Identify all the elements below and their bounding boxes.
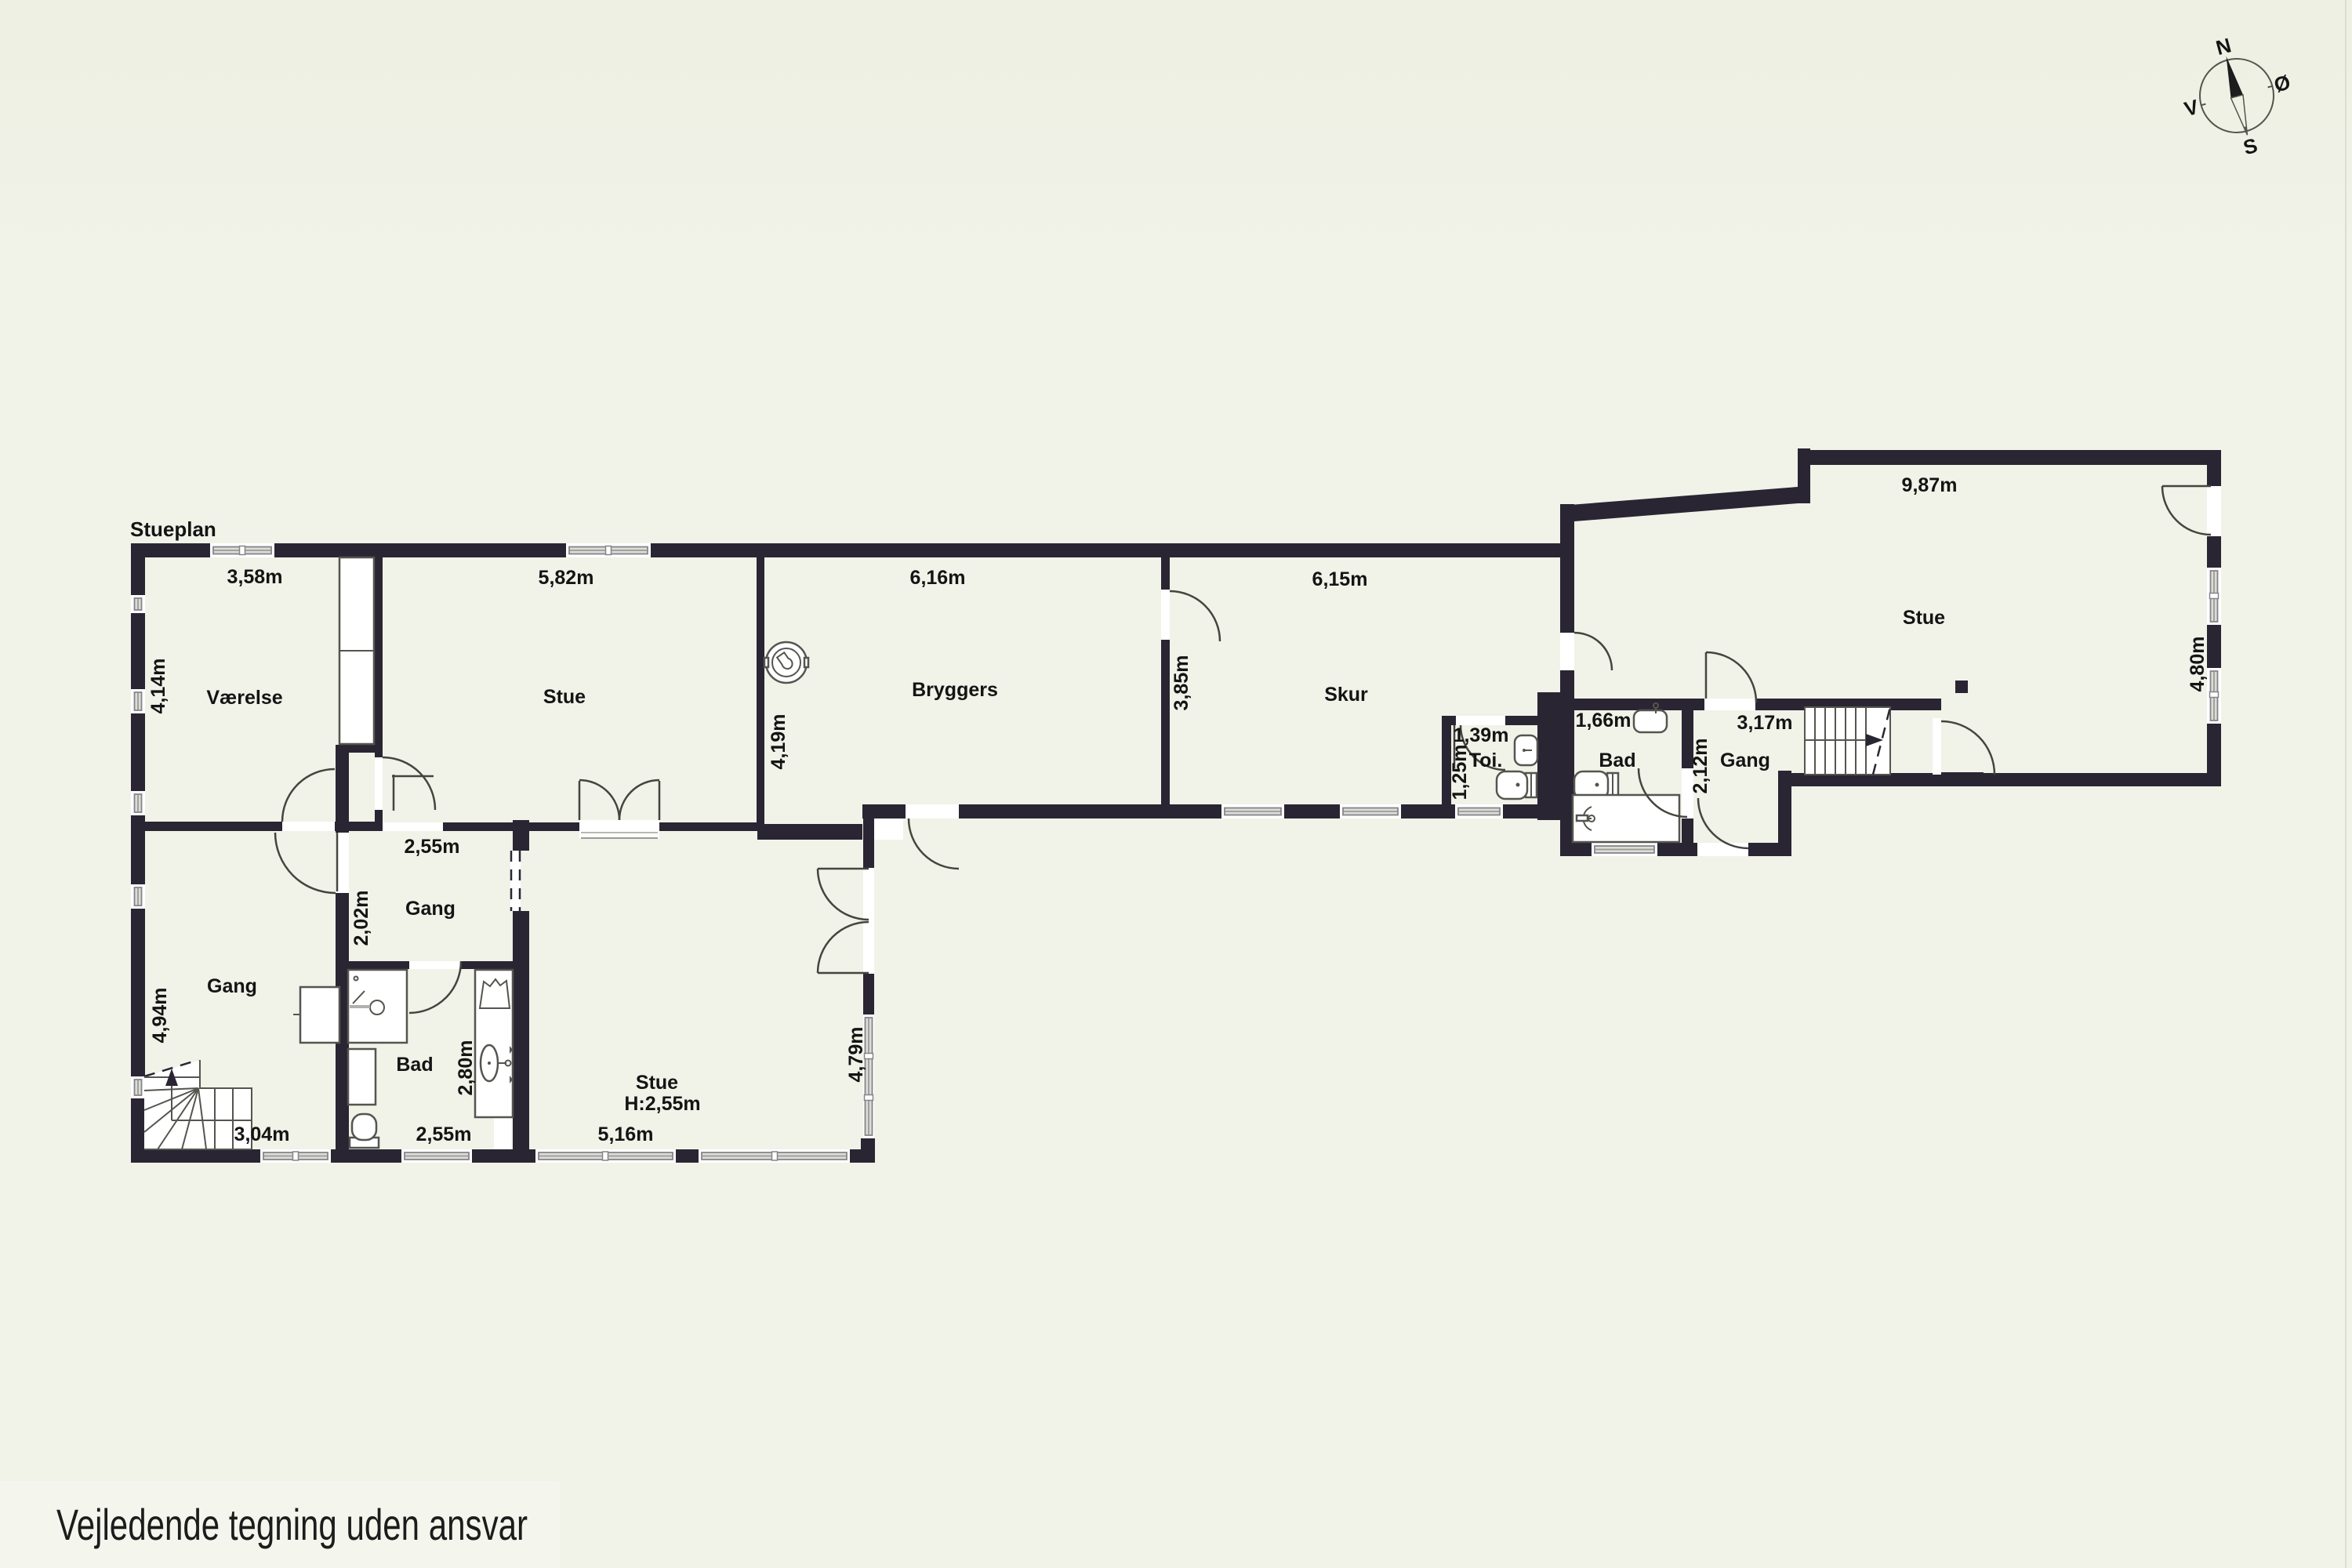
svg-text:4,79m: 4,79m <box>845 1027 867 1083</box>
svg-text:5,82m: 5,82m <box>539 567 594 589</box>
svg-text:Gang: Gang <box>405 898 456 920</box>
svg-text:3,85m: 3,85m <box>1171 655 1192 711</box>
svg-text:Bad: Bad <box>1599 750 1635 771</box>
svg-text:Toi.: Toi. <box>1469 750 1503 771</box>
svg-text:2,80m: 2,80m <box>455 1040 477 1096</box>
svg-text:Vejledende tegning uden ansvar: Vejledende tegning uden ansvar <box>56 1500 528 1549</box>
svg-text:2,55m: 2,55m <box>405 836 460 858</box>
svg-text:1,66m: 1,66m <box>1576 710 1632 731</box>
svg-text:1,39m: 1,39m <box>1454 724 1509 746</box>
svg-text:Bryggers: Bryggers <box>912 679 998 701</box>
svg-text:4,80m: 4,80m <box>2187 637 2209 692</box>
svg-text:9,87m: 9,87m <box>1902 474 1958 496</box>
svg-text:2,12m: 2,12m <box>1690 739 1711 794</box>
svg-text:Stue: Stue <box>636 1072 678 1094</box>
svg-text:Stueplan: Stueplan <box>130 517 216 541</box>
svg-text:4,14m: 4,14m <box>147 659 169 714</box>
svg-text:Skur: Skur <box>1324 684 1368 706</box>
svg-text:4,94m: 4,94m <box>149 988 171 1044</box>
svg-text:Stue: Stue <box>543 686 586 708</box>
svg-text:Værelse: Værelse <box>206 687 282 709</box>
svg-text:6,16m: 6,16m <box>910 567 966 589</box>
svg-text:2,02m: 2,02m <box>350 891 372 946</box>
svg-text:Gang: Gang <box>1720 750 1770 771</box>
svg-text:Bad: Bad <box>396 1054 433 1076</box>
svg-text:Gang: Gang <box>207 975 257 997</box>
svg-text:H:2,55m: H:2,55m <box>624 1093 700 1115</box>
svg-text:3,04m: 3,04m <box>234 1123 290 1145</box>
svg-text:3,58m: 3,58m <box>227 566 283 588</box>
svg-text:Stue: Stue <box>1903 607 1945 629</box>
svg-text:3,17m: 3,17m <box>1737 712 1793 734</box>
svg-text:1,25m: 1,25m <box>1449 745 1471 800</box>
svg-text:5,16m: 5,16m <box>598 1123 654 1145</box>
svg-text:4,19m: 4,19m <box>768 714 789 770</box>
svg-text:2,55m: 2,55m <box>416 1123 472 1145</box>
svg-text:6,15m: 6,15m <box>1312 568 1368 590</box>
